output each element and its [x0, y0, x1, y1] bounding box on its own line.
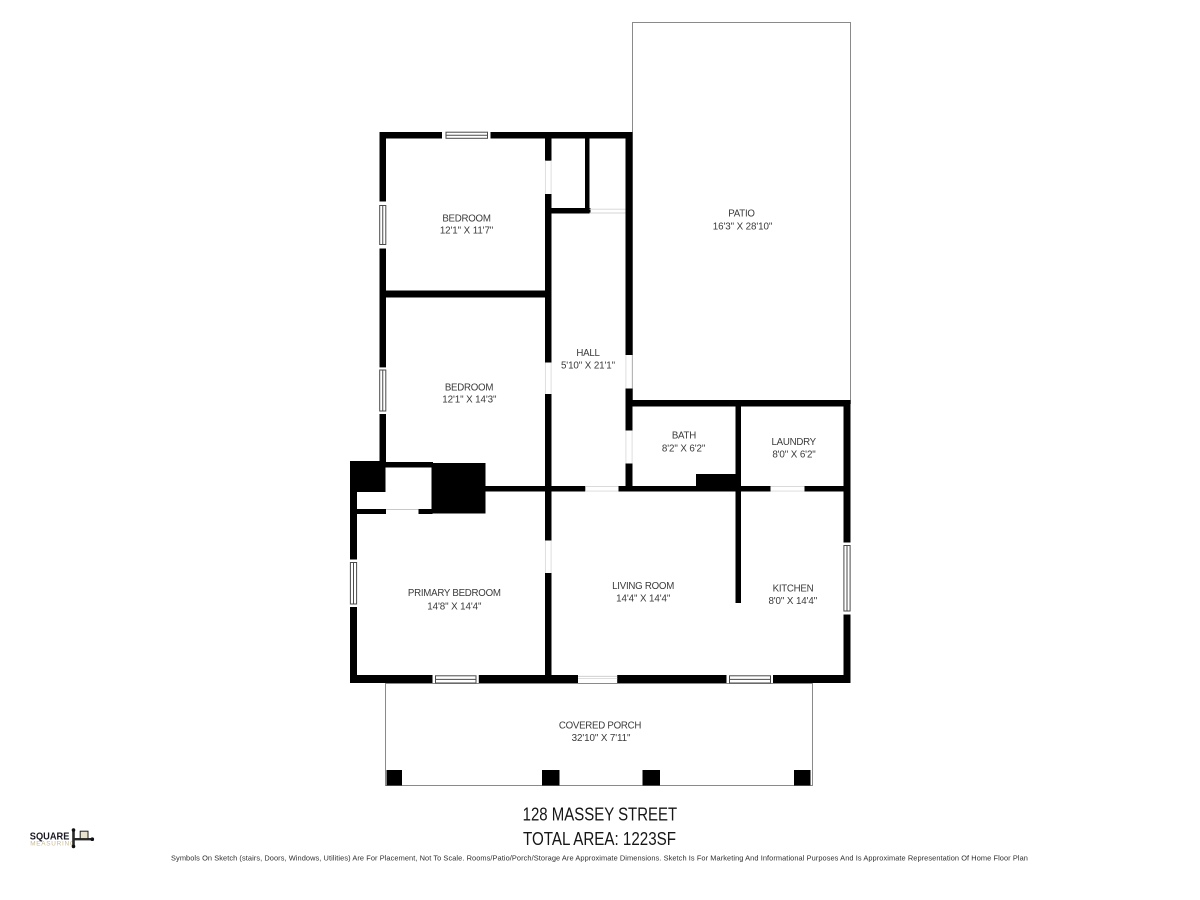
svg-text:12'1" X 14'3": 12'1" X 14'3" [442, 394, 497, 405]
svg-text:8'0" X 6'2": 8'0" X 6'2" [772, 449, 816, 460]
svg-text:8'0" X 14'4": 8'0" X 14'4" [768, 596, 817, 607]
svg-text:PRIMARY BEDROOM: PRIMARY BEDROOM [408, 588, 501, 599]
svg-text:BEDROOM: BEDROOM [442, 213, 490, 224]
svg-text:BEDROOM: BEDROOM [445, 383, 493, 394]
svg-text:8'2" X 6'2": 8'2" X 6'2" [662, 443, 706, 454]
svg-text:5'10" X 21'1": 5'10" X 21'1" [561, 361, 616, 372]
svg-text:14'8" X 14'4": 14'8" X 14'4" [427, 601, 482, 612]
svg-text:TOTAL AREA: 1223SF: TOTAL AREA: 1223SF [523, 828, 676, 849]
svg-text:HALL: HALL [576, 348, 600, 359]
svg-text:12'1" X 11'7": 12'1" X 11'7" [440, 225, 494, 236]
svg-text:14'4" X 14'4": 14'4" X 14'4" [616, 594, 671, 605]
svg-text:16'3" X 28'10": 16'3" X 28'10" [713, 222, 773, 233]
svg-text:LAUNDRY: LAUNDRY [772, 437, 817, 448]
svg-text:BATH: BATH [672, 431, 696, 442]
svg-text:32'10" X 7'11": 32'10" X 7'11" [572, 733, 631, 744]
svg-text:128 MASSEY STREET: 128 MASSEY STREET [523, 803, 678, 824]
svg-text:PATIO: PATIO [728, 209, 755, 220]
svg-text:MEASURING: MEASURING [30, 840, 75, 847]
svg-text:Symbols On Sketch (stairs, Doo: Symbols On Sketch (stairs, Doors, Window… [171, 853, 1028, 862]
svg-text:COVERED PORCH: COVERED PORCH [559, 721, 642, 732]
svg-text:KITCHEN: KITCHEN [773, 583, 814, 594]
svg-text:LIVING ROOM: LIVING ROOM [612, 581, 674, 592]
